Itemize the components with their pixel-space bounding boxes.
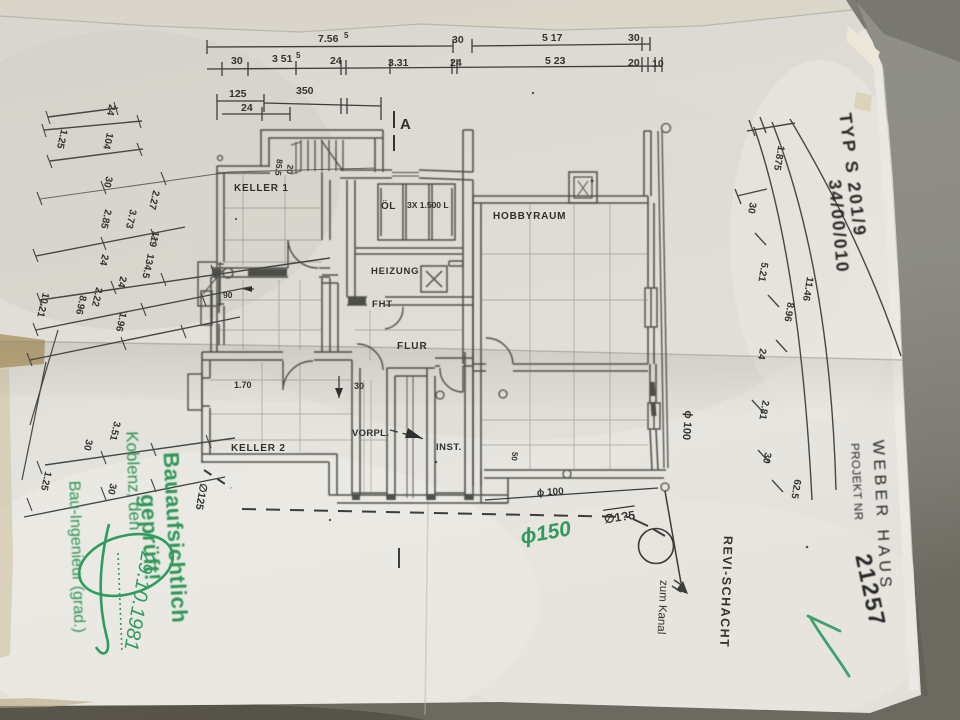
svg-text:KELLER 1: KELLER 1 xyxy=(234,183,289,194)
svg-text:24: 24 xyxy=(450,57,462,69)
svg-text:A: A xyxy=(400,116,411,133)
svg-text:HEIZUNG: HEIZUNG xyxy=(371,266,419,277)
svg-text:20: 20 xyxy=(628,57,640,69)
svg-text:KELLER 2: KELLER 2 xyxy=(231,443,286,454)
svg-text:3 51: 3 51 xyxy=(272,53,293,65)
svg-text:VORPL.: VORPL. xyxy=(352,428,389,439)
svg-text:1.70: 1.70 xyxy=(234,380,252,390)
svg-text:30: 30 xyxy=(231,55,243,67)
svg-text:ÖL: ÖL xyxy=(381,199,396,212)
svg-text:3.31: 3.31 xyxy=(388,57,409,69)
svg-text:INST.: INST. xyxy=(436,442,462,453)
svg-text:20: 20 xyxy=(284,164,295,175)
svg-text:30: 30 xyxy=(452,34,464,46)
svg-text:ϕ 100: ϕ 100 xyxy=(536,486,564,499)
svg-text:5: 5 xyxy=(344,31,349,40)
svg-text:Koblenz, den: Koblenz, den xyxy=(122,431,144,531)
svg-text:24: 24 xyxy=(330,55,342,67)
svg-text:3X 1.500 L: 3X 1.500 L xyxy=(407,200,449,210)
svg-text:5 17: 5 17 xyxy=(542,32,563,44)
svg-text:85.5: 85.5 xyxy=(273,159,285,177)
svg-text:FLUR: FLUR xyxy=(397,341,428,352)
svg-text:24: 24 xyxy=(241,102,253,114)
svg-text:30: 30 xyxy=(628,32,640,44)
svg-text:125: 125 xyxy=(229,88,247,100)
svg-text:HOBBYRAUM: HOBBYRAUM xyxy=(493,211,566,222)
svg-text:7.56: 7.56 xyxy=(318,33,339,45)
svg-text:350: 350 xyxy=(296,85,314,97)
svg-text:30: 30 xyxy=(354,381,364,391)
svg-text:FHT: FHT xyxy=(372,299,393,310)
svg-text:5: 5 xyxy=(296,51,301,60)
svg-text:10: 10 xyxy=(652,58,664,70)
svg-text:50: 50 xyxy=(509,451,519,461)
svg-text:5 23: 5 23 xyxy=(545,55,566,67)
